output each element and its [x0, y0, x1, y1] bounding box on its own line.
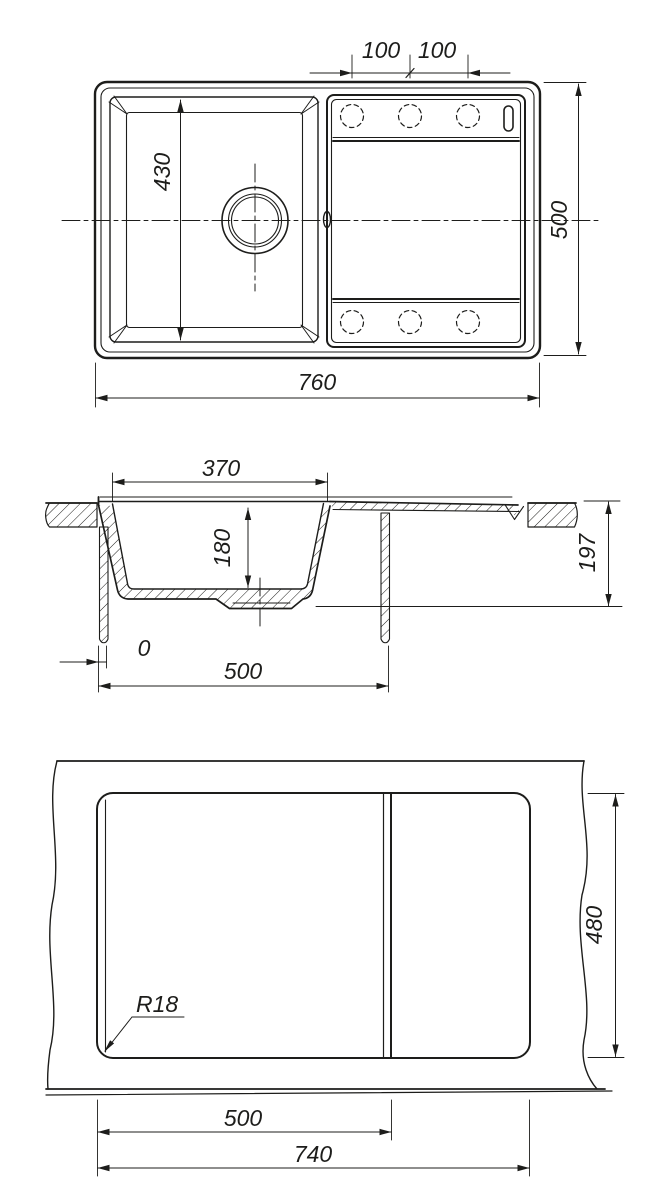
dim-overall-length: 760 — [96, 363, 540, 407]
worktop-slab — [46, 761, 612, 1095]
dim-cutout-length: 740 — [98, 1100, 530, 1176]
section-view: 370 180 197 0 — [46, 455, 622, 692]
tap-hole-knockout — [341, 311, 364, 334]
dispenser-slot — [504, 106, 513, 131]
dim-label-370: 370 — [202, 455, 241, 481]
dim-label-0: 0 — [138, 635, 151, 661]
dim-label-500-cutout: 500 — [224, 1105, 263, 1131]
sink-technical-drawing: 100 100 430 500 760 — [0, 0, 672, 1200]
dim-label-760: 760 — [298, 369, 337, 395]
dim-label-100-left: 100 — [362, 37, 401, 63]
dim-label-100-right: 100 — [418, 37, 457, 63]
sink-section — [99, 497, 524, 628]
cabinet-panel-right — [381, 513, 390, 643]
dim-label-740: 740 — [294, 1141, 333, 1167]
dim-cutout-width: 480 — [581, 794, 624, 1058]
dim-label-500-top-view: 500 — [546, 201, 572, 240]
tap-hole-knockout — [341, 105, 364, 128]
dim-tap-hole-spacing: 100 100 — [310, 37, 510, 78]
cutout-view: R18 500 740 480 — [46, 761, 624, 1176]
top-view: 100 100 430 500 760 — [62, 37, 598, 407]
worktop-left — [46, 503, 97, 527]
tap-hole-knockout — [457, 105, 480, 128]
radius-label-r18: R18 — [136, 991, 178, 1017]
dim-label-500-section: 500 — [224, 658, 263, 684]
dim-overall-width: 500 — [544, 83, 586, 356]
break-edge-left — [48, 761, 57, 1089]
tap-hole-knockout — [399, 105, 422, 128]
cutout-outline — [97, 793, 530, 1058]
dim-label-480: 480 — [581, 906, 607, 945]
dim-bowl-depth: 180 — [209, 508, 251, 588]
dim-bowl-top-width: 370 — [113, 455, 328, 501]
tap-hole-knockout — [399, 311, 422, 334]
dim-label-180: 180 — [209, 529, 235, 568]
tap-hole-knockout — [457, 311, 480, 334]
centerlines — [62, 164, 598, 291]
dim-label-197: 197 — [574, 533, 600, 573]
radius-callout: R18 — [104, 991, 184, 1052]
worktop-right — [528, 503, 577, 527]
dim-cutout-bowl-width: 500 — [98, 1100, 392, 1176]
bowl — [109, 96, 331, 343]
dim-zero-offset: 0 — [60, 635, 151, 692]
dim-label-430: 430 — [149, 153, 175, 192]
